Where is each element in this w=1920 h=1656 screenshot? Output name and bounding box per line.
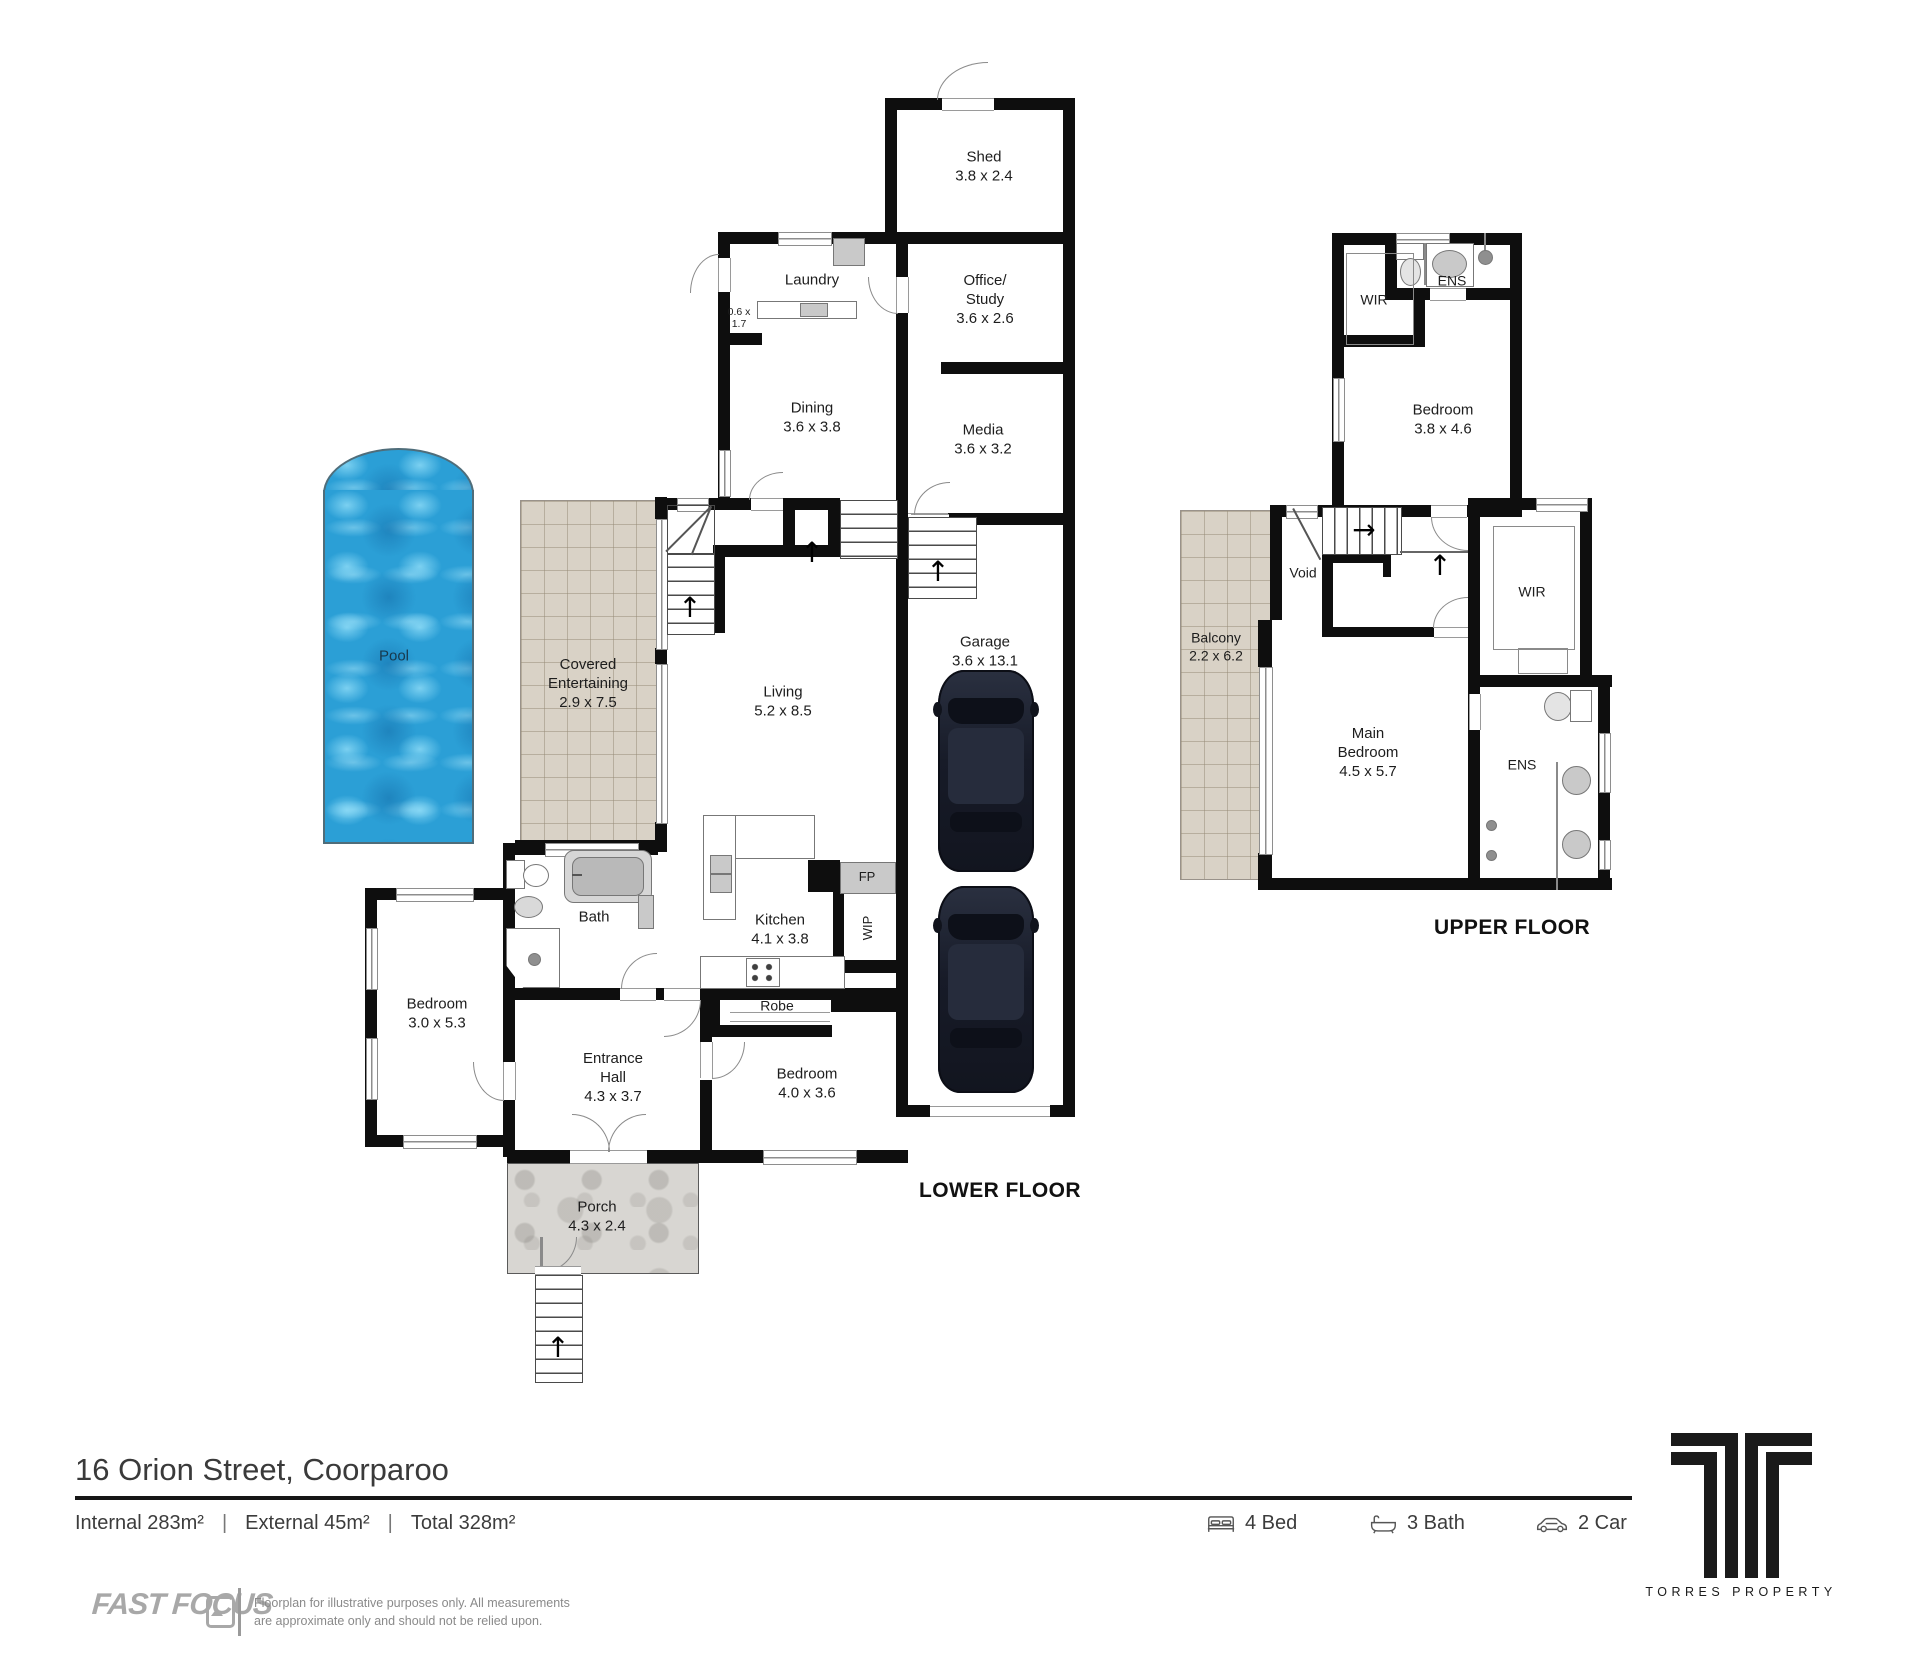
torres-logo-bar <box>1745 1433 1758 1578</box>
bath-tap-icon <box>572 874 582 876</box>
room-label-main-bedroom: Main Bedroom4.5 x 5.7 <box>1338 725 1399 781</box>
garage-door-opening <box>930 1106 1050 1117</box>
room-label-bedroom-1: Bedroom3.0 x 5.3 <box>407 995 468 1033</box>
bath-label: 3 Bath <box>1407 1512 1465 1535</box>
window <box>763 1150 857 1165</box>
car-windshield <box>948 698 1024 724</box>
shower-rose <box>1478 250 1493 265</box>
door-opening <box>1430 288 1466 301</box>
wall <box>1322 627 1434 637</box>
car-top-view <box>938 670 1034 872</box>
vanity-sink <box>1562 766 1591 795</box>
wall <box>1050 1105 1075 1117</box>
wall <box>718 333 762 345</box>
toilet-bowl <box>1544 692 1572 721</box>
wall <box>700 1000 712 1044</box>
wall <box>1322 554 1390 563</box>
window <box>1286 505 1318 519</box>
wall <box>1332 233 1344 517</box>
lower-floor-title: LOWER FLOOR <box>919 1178 1081 1204</box>
direction-arrow: ↑ <box>678 594 701 622</box>
door-opening <box>620 988 656 1001</box>
car-top-view <box>938 886 1034 1093</box>
wall <box>1258 878 1612 890</box>
door-arc <box>937 62 988 100</box>
porch-steps <box>535 1275 583 1383</box>
pool-arch <box>323 448 474 494</box>
internal-area: Internal 283m² <box>75 1512 204 1535</box>
room-label-covered-entertaining: Covered Entertaining2.9 x 7.5 <box>548 656 628 712</box>
wall <box>1270 505 1282 620</box>
door-arc <box>914 482 950 515</box>
sliding-door <box>1259 667 1273 855</box>
window <box>1333 378 1345 442</box>
window <box>396 888 474 902</box>
door-arc <box>712 1042 745 1079</box>
wall <box>503 1100 515 1157</box>
wardrobe-outline <box>1518 648 1568 674</box>
wall <box>700 1080 712 1163</box>
disclaimer-line-2: are approximate only and should not be r… <box>254 1614 542 1628</box>
wall <box>718 244 730 258</box>
wall <box>1580 505 1592 687</box>
door-arc <box>621 953 657 989</box>
door-arc <box>690 254 719 293</box>
wall <box>1468 505 1480 687</box>
room-label-shed: Shed3.8 x 2.4 <box>955 148 1013 186</box>
door-opening <box>1434 627 1468 638</box>
wall <box>1063 98 1075 1117</box>
sliding-door <box>656 664 668 824</box>
room-label-bath: Bath <box>579 909 610 928</box>
wall <box>896 244 908 277</box>
torres-logo-bar <box>1766 1452 1779 1578</box>
kitchen-sink <box>710 874 732 893</box>
car-mirror <box>933 702 942 717</box>
fastfocus-logo: FAST FOCUS <box>91 1588 273 1622</box>
room-label-garage: Garage3.6 x 13.1 <box>952 633 1018 671</box>
wall <box>1413 300 1425 347</box>
room-label-bedroom-2: Bedroom4.0 x 3.6 <box>777 1065 838 1103</box>
vanity-edge <box>1556 762 1558 890</box>
door-arc <box>664 1000 701 1037</box>
car-windshield <box>948 914 1024 940</box>
torres-logo-bar <box>1745 1433 1812 1446</box>
direction-arrow: ↑ <box>546 1334 569 1362</box>
car-icon <box>1535 1514 1569 1534</box>
window <box>366 928 378 990</box>
car-mirror <box>933 918 942 933</box>
door-arc <box>749 472 783 500</box>
toilet-bowl <box>523 864 549 887</box>
wall <box>365 888 377 1147</box>
torres-logo-bar <box>1766 1452 1812 1465</box>
torres-property-wordmark: TORRES PROPERTY <box>1645 1585 1836 1599</box>
room-label-void: Void <box>1289 564 1316 582</box>
door-opening <box>503 1062 516 1100</box>
stove-cooktop <box>746 958 780 987</box>
room-label-bedroom-3: Bedroom3.8 x 4.6 <box>1413 401 1474 439</box>
window <box>403 1135 477 1149</box>
area-summary: Internal 283m² | External 45m² | Total 3… <box>75 1512 515 1535</box>
bathtub-basin <box>572 857 644 896</box>
room-label-ens-bottom: ENS <box>1508 756 1537 774</box>
laundry-trough <box>800 303 828 317</box>
wall <box>503 988 908 1000</box>
wall <box>1322 554 1333 637</box>
separator: | <box>222 1512 227 1535</box>
car-count: 2 Car <box>1535 1512 1627 1535</box>
bath-count: 3 Bath <box>1368 1512 1465 1535</box>
wall <box>908 1105 930 1117</box>
bed-label: 4 Bed <box>1245 1512 1297 1535</box>
toilet-cistern <box>1570 690 1592 722</box>
door-opening <box>535 1266 581 1275</box>
separator: | <box>388 1512 393 1535</box>
entry-door-opening <box>570 1150 647 1164</box>
window <box>366 1038 378 1100</box>
door-arc <box>572 1114 610 1152</box>
room-label-wip: WIP <box>860 916 876 941</box>
wall <box>655 648 667 664</box>
divider <box>238 1588 241 1636</box>
room-label-nook: 0.6 x 1.7 <box>728 306 751 330</box>
wall <box>1510 233 1522 517</box>
bed-icon <box>1206 1513 1236 1534</box>
wall <box>1258 620 1272 667</box>
direction-arrow: → <box>1352 516 1375 544</box>
wall <box>831 1000 908 1012</box>
shower-panel <box>638 895 654 929</box>
door-opening <box>1469 694 1481 730</box>
car-rear-window <box>950 1028 1022 1048</box>
window <box>778 232 832 246</box>
window <box>719 450 731 497</box>
window <box>1599 733 1611 793</box>
room-label-laundry: Laundry <box>785 272 839 291</box>
car-rear-window <box>950 812 1022 832</box>
pool-water <box>323 490 474 844</box>
car-mirror <box>1030 918 1039 933</box>
staircase <box>840 500 898 559</box>
wall <box>718 232 1075 244</box>
shower-tap <box>1486 820 1497 831</box>
room-label-wir-top: WIR <box>1360 291 1387 309</box>
door-arc <box>1433 597 1468 628</box>
bed-count: 4 Bed <box>1206 1512 1297 1535</box>
wall <box>720 1025 832 1037</box>
torres-logo-bar <box>1725 1433 1738 1578</box>
room-label-porch: Porch4.3 x 2.4 <box>568 1198 626 1236</box>
room-label-media: Media3.6 x 3.2 <box>954 421 1012 459</box>
fastfocus-photo-icon <box>206 1596 235 1628</box>
door-arc <box>608 1114 646 1152</box>
car-roof <box>948 728 1024 804</box>
room-label-entrance-hall: Entrance Hall4.3 x 3.7 <box>583 1050 643 1106</box>
window <box>1536 498 1588 512</box>
direction-arrow: ↑ <box>800 539 823 567</box>
external-area: External 45m² <box>245 1512 370 1535</box>
window <box>1599 840 1611 870</box>
room-label-ens-top: ENS <box>1438 272 1467 290</box>
room-label-pool: Pool <box>379 648 409 667</box>
kitchen-sink <box>710 855 732 874</box>
direction-arrow: ↑ <box>926 558 949 586</box>
divider <box>75 1496 1632 1500</box>
wall <box>885 98 897 244</box>
total-area: Total 328m² <box>411 1512 516 1535</box>
shower-drain <box>528 953 541 966</box>
torres-logo-bar <box>1704 1452 1717 1578</box>
door-arc <box>1431 517 1468 551</box>
room-label-office: Office/ Study3.6 x 2.6 <box>956 272 1014 328</box>
room-label-kitchen: Kitchen4.1 x 3.8 <box>751 911 809 949</box>
wall <box>808 860 840 892</box>
page-title: 16 Orion Street, Coorparoo <box>75 1452 449 1488</box>
washing-machine <box>833 238 865 266</box>
bath-sink <box>514 896 543 918</box>
shower-tap <box>1486 850 1497 861</box>
direction-arrow: ↑ <box>1428 552 1451 580</box>
room-label-wir-right: WIR <box>1518 583 1545 601</box>
floorplan-page: ↑ ↑ ↑ ↑ Shed3.8 x 2.4 Laundry 0.6 x 1.7 … <box>0 0 1920 1656</box>
room-label-living: Living5.2 x 8.5 <box>754 683 812 721</box>
room-label-dining: Dining3.6 x 3.8 <box>783 399 841 437</box>
room-label-robe: Robe <box>760 997 793 1015</box>
bath-icon <box>1368 1513 1398 1534</box>
vanity-sink <box>1562 830 1591 859</box>
car-mirror <box>1030 702 1039 717</box>
room-label-fireplace: FP <box>859 869 876 885</box>
room-label-balcony: Balcony2.2 x 6.2 <box>1189 630 1243 665</box>
car-label: 2 Car <box>1578 1512 1627 1535</box>
wall <box>941 362 1075 374</box>
door-opening <box>718 258 731 292</box>
disclaimer-line-1: Floorplan for illustrative purposes only… <box>254 1596 570 1610</box>
door-arc <box>868 277 898 314</box>
upper-floor-title: UPPER FLOOR <box>1434 915 1590 941</box>
wall <box>655 497 667 519</box>
wall <box>1383 554 1391 577</box>
door-arc <box>473 1062 504 1101</box>
car-roof <box>948 944 1024 1020</box>
